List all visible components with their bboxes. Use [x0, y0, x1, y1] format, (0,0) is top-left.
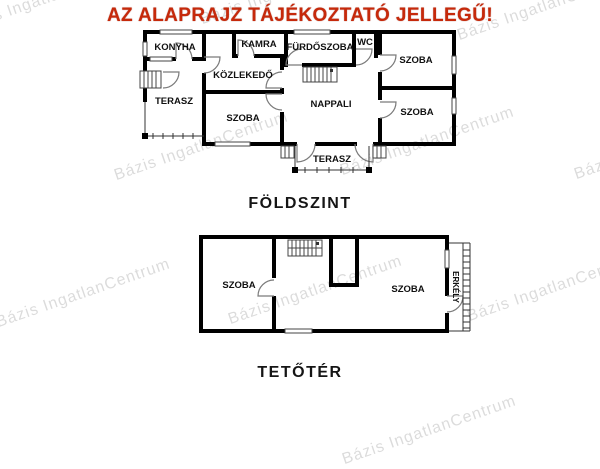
ground-floor-entry-steps	[140, 71, 161, 88]
ground-floor-stairs	[303, 67, 337, 82]
room-label-attic-szoba-jobb: SZOBA	[391, 284, 424, 295]
room-label-kamra: KAMRA	[241, 39, 276, 50]
room-label-attic-szoba-bal: SZOBA	[222, 280, 255, 291]
room-label-konyha: KONYHA	[154, 42, 195, 53]
room-label-szoba-jobb-felso: SZOBA	[399, 55, 432, 66]
ground-floor-plan: KONYHA KAMRA FÜRDŐSZOBA WC SZOBA KÖZLEKE…	[140, 30, 456, 173]
room-label-terasz-bal: TERASZ	[155, 96, 193, 107]
room-label-terasz-also: TERASZ	[313, 154, 351, 165]
attic-doors	[258, 280, 463, 312]
room-label-furdoszoba: FÜRDŐSZOBA	[286, 41, 353, 53]
room-label-nappali: NAPPALI	[311, 99, 352, 110]
attic-stairs	[288, 240, 322, 256]
terasz-left-boundary	[142, 102, 204, 139]
floorplan-page: { "title": "AZ ALAPRAJZ TÁJÉKOZTATÓ JELL…	[0, 0, 600, 424]
room-label-erkely: ERKÉLY	[451, 271, 460, 303]
room-label-szoba-kozep: SZOBA	[226, 113, 259, 124]
attic-plan: SZOBA SZOBA ERKÉLY	[199, 235, 470, 333]
room-label-szoba-jobb-also: SZOBA	[400, 107, 433, 118]
floor-plans-canvas: KONYHA KAMRA FÜRDŐSZOBA WC SZOBA KÖZLEKE…	[0, 0, 600, 424]
room-label-wc: WC	[357, 37, 373, 48]
room-label-kozlekedo: KÖZLEKEDŐ	[213, 69, 273, 81]
